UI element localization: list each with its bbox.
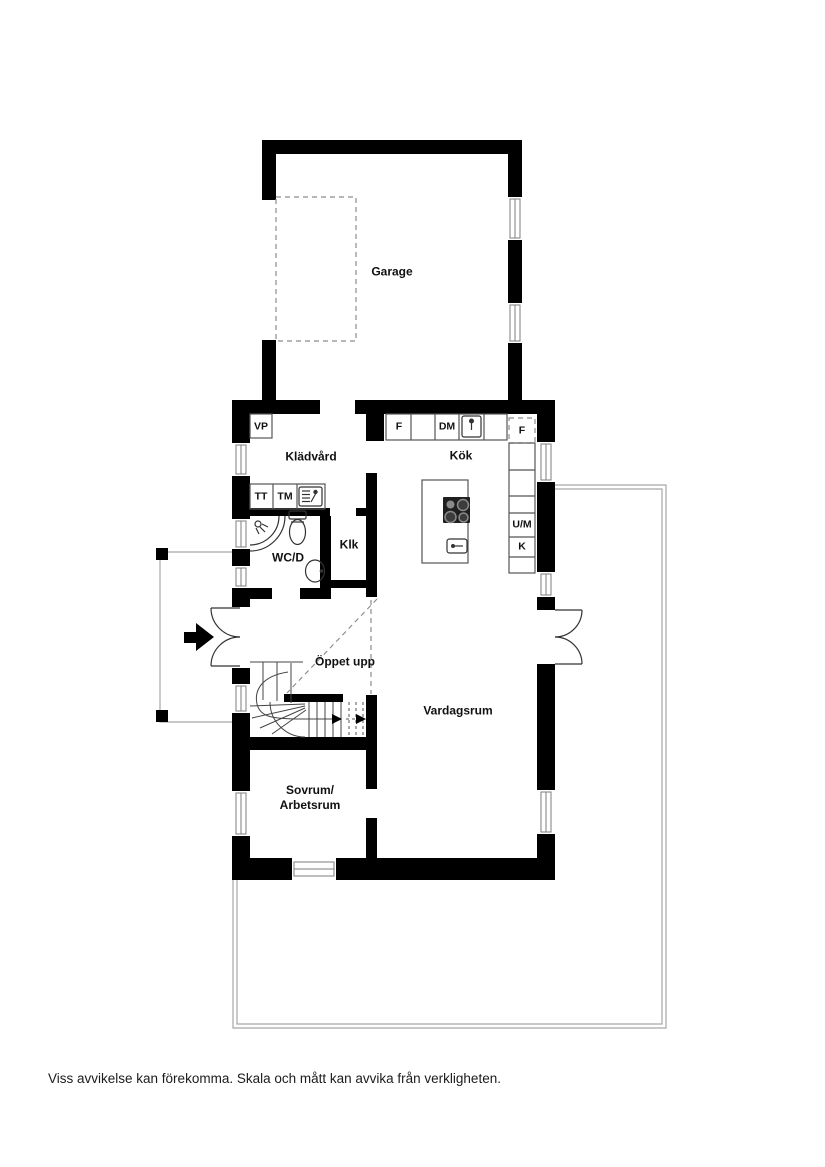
terrace-double-door — [555, 610, 582, 664]
window — [232, 566, 250, 588]
room-label-oppet-upp: Öppet upp — [315, 655, 375, 670]
window — [537, 572, 555, 597]
fixture-label-dm: DM — [439, 420, 455, 435]
fixture-label-k: K — [518, 540, 526, 555]
laundry-sink-icon — [299, 487, 322, 506]
entry-double-door — [211, 608, 240, 666]
shower-icon — [250, 516, 285, 551]
window — [232, 519, 250, 549]
island-sink-icon — [447, 539, 467, 553]
kitchen-sink-icon — [462, 416, 481, 437]
window — [508, 197, 522, 240]
room-label-vardagsrum: Vardagsrum — [423, 704, 492, 719]
porch-post — [156, 710, 168, 722]
fixture-label-tm: TM — [277, 490, 292, 505]
washbasin-icon — [306, 560, 325, 582]
fixture-label-um: U/M — [512, 518, 531, 533]
cooktop-icon — [443, 497, 470, 523]
window — [537, 790, 555, 834]
window — [508, 303, 522, 343]
window — [232, 443, 250, 476]
stair-direction-arrow — [356, 714, 366, 724]
open-above-dashed — [287, 599, 377, 694]
windows — [232, 197, 555, 880]
toilet-icon — [289, 511, 306, 545]
floor-plan-drawing — [0, 0, 825, 1167]
fixture-label-tt: TT — [255, 490, 268, 505]
porch-post — [156, 548, 168, 560]
garage-door-dashed — [276, 197, 356, 341]
floor-plan-canvas: Garage Klädvård Kök WC/D Klk Öppet upp V… — [0, 0, 825, 1167]
room-label-klk: Klk — [340, 538, 359, 553]
room-label-sovrum-arbetsrum: Sovrum/ Arbetsrum — [280, 783, 341, 813]
window — [232, 684, 250, 713]
window — [232, 791, 250, 836]
room-label-wcd: WC/D — [272, 551, 304, 566]
entry-arrow-icon — [184, 623, 214, 651]
terrace-outline — [233, 485, 666, 1028]
room-label-kok: Kök — [450, 449, 473, 464]
fixture-label-f-dashed: F — [519, 424, 525, 439]
window — [537, 442, 555, 482]
room-label-garage: Garage — [371, 265, 412, 280]
fixture-label-vp: VP — [254, 420, 268, 435]
window — [292, 858, 336, 880]
disclaimer-text: Viss avvikelse kan förekomma. Skala och … — [48, 1071, 501, 1086]
fixture-label-f: F — [396, 420, 402, 435]
room-label-kladvard: Klädvård — [285, 450, 336, 465]
